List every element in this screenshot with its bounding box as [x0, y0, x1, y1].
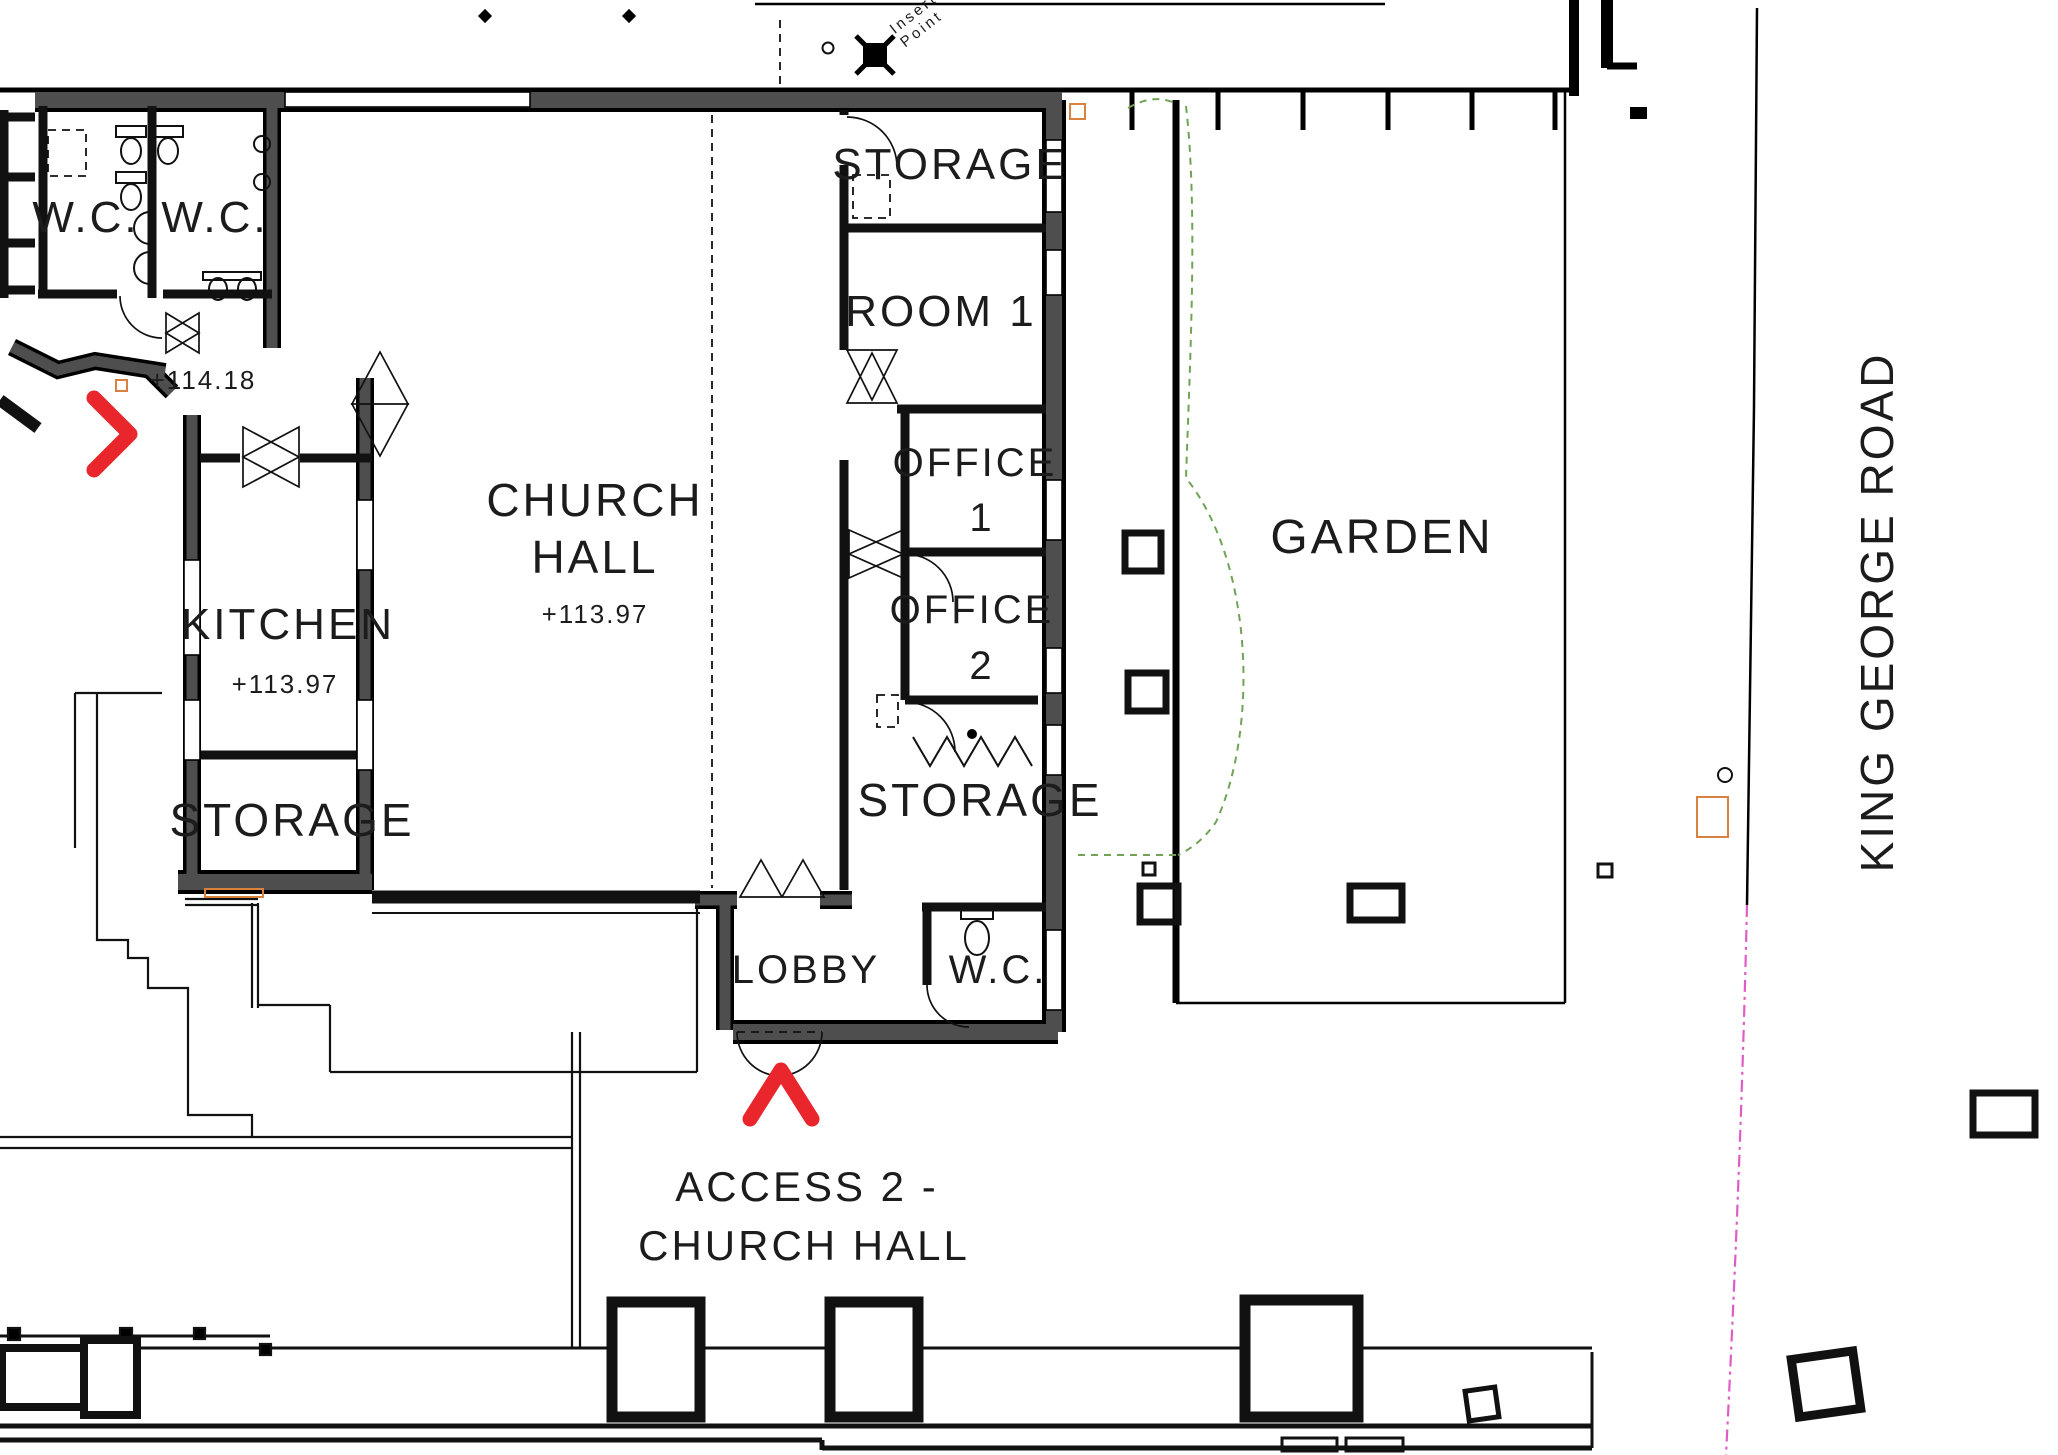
- east-window: [1046, 930, 1062, 1010]
- floor-plan-drawing: Insertion Point W.C. W.C. CHURCH HALL +1…: [0, 0, 2058, 1455]
- road-marker-rect: [1697, 797, 1728, 837]
- fence-post-ticks: [1132, 92, 1555, 130]
- room-label-storage-west: STORAGE: [169, 794, 414, 846]
- level-kitchen: +113.97: [232, 669, 339, 699]
- toilet-icon: [121, 138, 141, 164]
- room-label-office2-num: 2: [969, 644, 994, 688]
- path-edge-lines: [0, 1032, 580, 1348]
- room-label-kitchen: KITCHEN: [181, 600, 395, 649]
- toilet-icon: [153, 126, 183, 137]
- survey-circle-marker: [823, 43, 834, 54]
- office1-door-symbol: [849, 530, 903, 578]
- access-label-line2: CHURCH HALL: [638, 1222, 970, 1269]
- room-label-office1-num: 1: [969, 496, 994, 540]
- insertion-point-marker: Insertion Point: [856, 0, 974, 74]
- terrace-edge-lines: [185, 899, 697, 1072]
- fence-post: [260, 1344, 271, 1355]
- planter-south-2: [830, 1302, 918, 1417]
- room-label-wc-lobby: W.C.: [949, 948, 1048, 992]
- room1-door-symbol: [847, 350, 897, 403]
- insertion-point-x-icon: [856, 36, 894, 74]
- hall-west-opening-2: [357, 700, 373, 770]
- post-marker: [1630, 107, 1647, 119]
- planter-south: [612, 1302, 700, 1417]
- room-label-storage-east: STORAGE: [857, 774, 1102, 826]
- drainage-marker: [1070, 104, 1085, 119]
- storage-point-marker: [967, 729, 977, 739]
- road-side-box-tilted: [1791, 1351, 1860, 1417]
- garden-planter-box: [1140, 886, 1178, 922]
- road-side-box: [1973, 1093, 2035, 1135]
- rooflight-dashed: [48, 130, 86, 176]
- toilet-icon: [158, 138, 178, 164]
- room-label-room1: ROOM 1: [845, 287, 1037, 336]
- east-window: [1046, 725, 1062, 775]
- insertion-point-label: Insertion Point: [887, 0, 975, 51]
- wc-block-door-arc: [120, 296, 162, 338]
- entrance-angled-wall-black: [0, 400, 38, 428]
- storage-shelving-zigzag: [913, 737, 1032, 766]
- access-arrow-south-icon: [750, 1070, 812, 1119]
- external-steps: [75, 693, 252, 1137]
- hedge-scallop-path: [1075, 99, 1243, 855]
- planter-southwest-2: [84, 1340, 137, 1415]
- survey-diamond-marker-2: [622, 9, 636, 23]
- floor-plan-page: Insertion Point W.C. W.C. CHURCH HALL +1…: [0, 0, 2058, 1455]
- level-church-hall: +113.97: [542, 599, 649, 629]
- garden-label: GARDEN: [1270, 511, 1493, 564]
- room-label-storage-north: STORAGE: [832, 140, 1067, 189]
- garden-post: [1143, 863, 1155, 875]
- garden-hedge-line: [1075, 99, 1243, 855]
- small-box-tilted: [1465, 1387, 1499, 1421]
- access-arrow-west-icon: [94, 398, 130, 470]
- room-label-office2: OFFICE: [890, 588, 1055, 632]
- planter-southwest: [2, 1348, 92, 1407]
- road-boundary-line: [1747, 8, 1757, 905]
- garden-planter-box: [1350, 886, 1402, 920]
- east-window: [1046, 480, 1062, 540]
- room-label-wc-left: W.C.: [32, 193, 139, 242]
- east-window: [1046, 250, 1062, 295]
- drainage-marker-2: [116, 380, 127, 391]
- hall-north-window: [285, 92, 530, 107]
- room-label-office1: OFFICE: [893, 441, 1058, 485]
- east-window: [1046, 648, 1062, 693]
- internal-walls: [0, 106, 1046, 985]
- room-label-lobby: LOBBY: [732, 948, 880, 992]
- garden-planter-box: [1128, 673, 1166, 711]
- room-label-wc-middle: W.C.: [161, 193, 268, 242]
- hall-lobby-double-door-symbol: [740, 860, 824, 897]
- toilet-icon: [116, 172, 146, 183]
- planter-south-3: [1245, 1300, 1358, 1417]
- toilet-icon: [116, 126, 146, 137]
- garden-planter-box: [1125, 533, 1161, 571]
- fence-post: [194, 1328, 205, 1339]
- kitchen-west-window-2: [184, 700, 200, 760]
- fence-post: [8, 1328, 20, 1340]
- survey-diamond-marker: [478, 9, 492, 23]
- survey-circle-marker-2: [1718, 768, 1732, 782]
- hall-west-opening: [357, 500, 373, 570]
- room-label-church-hall-1: CHURCH: [486, 474, 703, 526]
- room-label-church-hall-2: HALL: [531, 531, 658, 583]
- storage-east-door-arc: [905, 702, 955, 752]
- boundary-magenta-dashed-line: [1726, 905, 1747, 1455]
- neighbour-wall-stubs: [0, 110, 35, 298]
- level-entrance: +114.18: [150, 365, 257, 395]
- garden-post: [1598, 864, 1612, 877]
- corridor-door-symbol: [166, 313, 199, 353]
- road-label: KING GEORGE ROAD: [1851, 352, 1903, 873]
- kitchen-door-symbol: [243, 427, 299, 487]
- storage-recess-dashed: [877, 695, 898, 727]
- access-label-line1: ACCESS 2 -: [675, 1163, 938, 1210]
